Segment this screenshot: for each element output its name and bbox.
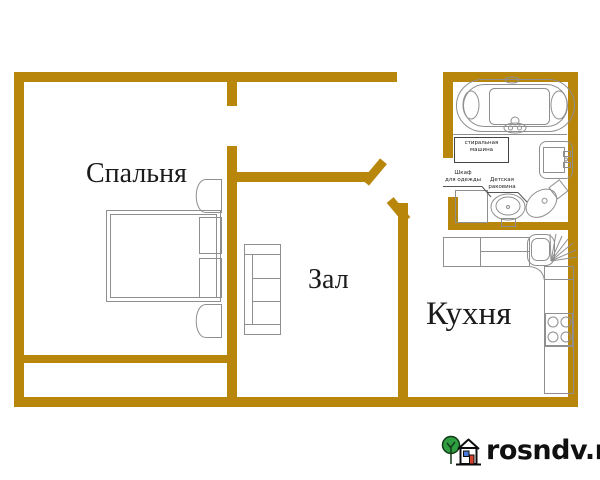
washing-machine-label-line1: стиральная	[455, 140, 508, 147]
child-sink-label-line2: раковина	[483, 184, 521, 191]
floor-plan: Спальня Зал Кухня стиральная машина Шкаф…	[0, 0, 600, 480]
sofa	[244, 245, 281, 335]
washing-machine-label-line2: машина	[455, 147, 508, 154]
nightstand-bottom-icon	[196, 305, 221, 338]
stove-icon	[546, 314, 573, 346]
wardrobe-label-line2: для одежды	[440, 177, 486, 184]
hall-label: Зал	[308, 264, 349, 296]
nightstand-top-icon	[196, 180, 221, 213]
watermark: rosndv.ru	[441, 433, 600, 467]
bedroom-label: Спальня	[86, 158, 187, 190]
wardrobe-label: Шкаф для одежды	[440, 170, 486, 183]
wall-sink-icon	[540, 142, 573, 179]
child-sink-label-line1: Детская	[483, 177, 521, 184]
rosndv-house-logo-icon	[441, 433, 481, 467]
double-bed	[107, 211, 222, 302]
jacuzzi-bathtub-icon	[453, 77, 575, 135]
washing-machine-label: стиральная машина	[454, 137, 509, 163]
pedestal-child-sink-icon	[491, 194, 525, 227]
toilet-icon	[521, 176, 572, 223]
kitchen-label: Кухня	[426, 296, 511, 333]
fixtures-layer	[0, 0, 600, 480]
child-sink-label: Детская раковина	[483, 177, 521, 190]
wardrobe-label-line1: Шкаф	[440, 170, 486, 177]
watermark-text: rosndv.ru	[486, 435, 600, 466]
wardrobe-box	[456, 191, 488, 223]
